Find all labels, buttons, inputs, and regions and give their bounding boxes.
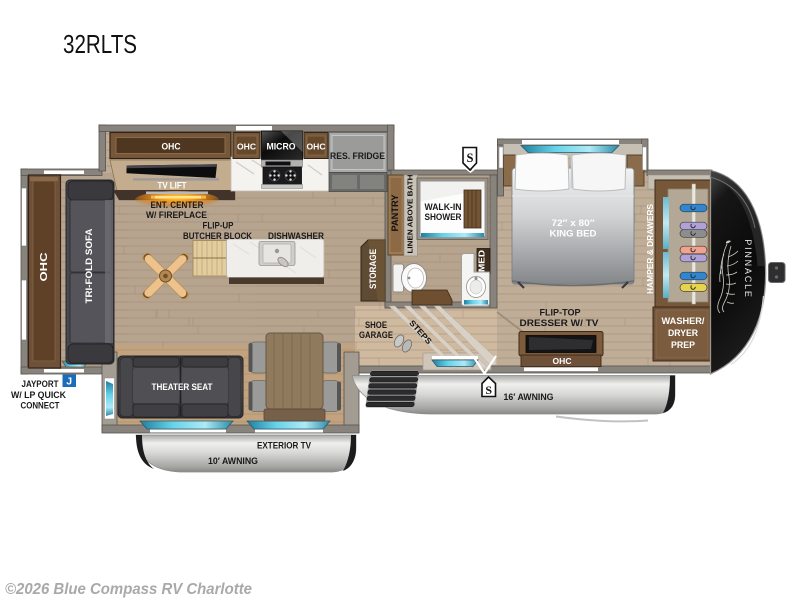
svg-text:DRYER: DRYER	[668, 328, 699, 338]
svg-text:OHC: OHC	[553, 356, 572, 366]
svg-text:TV LIFT: TV LIFT	[158, 181, 188, 191]
svg-text:LINEN ABOVE BATH: LINEN ABOVE BATH	[407, 175, 415, 254]
svg-text:16′ AWNING: 16′ AWNING	[504, 392, 554, 402]
svg-text:DRESSER W/ TV: DRESSER W/ TV	[520, 318, 600, 328]
svg-text:KING BED: KING BED	[550, 229, 598, 239]
svg-text:10′ AWNING: 10′ AWNING	[208, 456, 258, 466]
svg-text:SHOE: SHOE	[365, 320, 387, 330]
svg-text:FLIP-TOP: FLIP-TOP	[540, 308, 581, 318]
svg-text:HAMPER & DRAWERS: HAMPER & DRAWERS	[645, 204, 655, 294]
svg-text:MICRO: MICRO	[267, 142, 296, 152]
svg-text:OHC: OHC	[162, 142, 181, 152]
svg-text:THEATER SEAT: THEATER SEAT	[152, 382, 213, 392]
svg-text:MED: MED	[478, 250, 487, 272]
svg-text:PANTRY: PANTRY	[390, 194, 400, 231]
svg-text:OHC: OHC	[39, 253, 50, 282]
svg-text:32RLTS: 32RLTS	[63, 29, 137, 59]
svg-text:OHC: OHC	[237, 142, 256, 152]
svg-text:CONNECT: CONNECT	[21, 401, 60, 411]
svg-text:J: J	[66, 376, 72, 388]
svg-text:ENT. CENTER: ENT. CENTER	[151, 200, 204, 210]
svg-text:GARAGE: GARAGE	[359, 330, 393, 340]
svg-text:72″ x 80″: 72″ x 80″	[552, 218, 596, 228]
svg-text:W/ FIREPLACE: W/ FIREPLACE	[146, 210, 207, 220]
svg-text:TRI-FOLD SOFA: TRI-FOLD SOFA	[84, 228, 94, 303]
svg-text:S: S	[485, 383, 492, 397]
svg-text:SHOWER: SHOWER	[425, 212, 463, 222]
svg-text:S: S	[467, 151, 474, 165]
svg-text:FLIP-UP: FLIP-UP	[203, 221, 234, 231]
svg-text:©2026 Blue Compass RV Charlott: ©2026 Blue Compass RV Charlotte	[5, 581, 252, 598]
svg-text:DISHWASHER: DISHWASHER	[268, 231, 324, 241]
svg-text:WALK-IN: WALK-IN	[425, 202, 462, 212]
svg-text:OHC: OHC	[307, 142, 326, 152]
svg-text:STORAGE: STORAGE	[368, 249, 378, 289]
svg-text:BUTCHER BLOCK: BUTCHER BLOCK	[183, 231, 252, 241]
svg-text:PREP: PREP	[671, 340, 695, 350]
svg-text:WASHER/: WASHER/	[662, 316, 706, 326]
svg-text:EXTERIOR TV: EXTERIOR TV	[257, 441, 312, 451]
svg-text:RES. FRIDGE: RES. FRIDGE	[330, 151, 385, 161]
svg-text:W/ LP QUICK: W/ LP QUICK	[11, 390, 66, 400]
svg-text:PINNACLE: PINNACLE	[743, 239, 753, 298]
svg-text:JAYPORT: JAYPORT	[22, 379, 59, 389]
